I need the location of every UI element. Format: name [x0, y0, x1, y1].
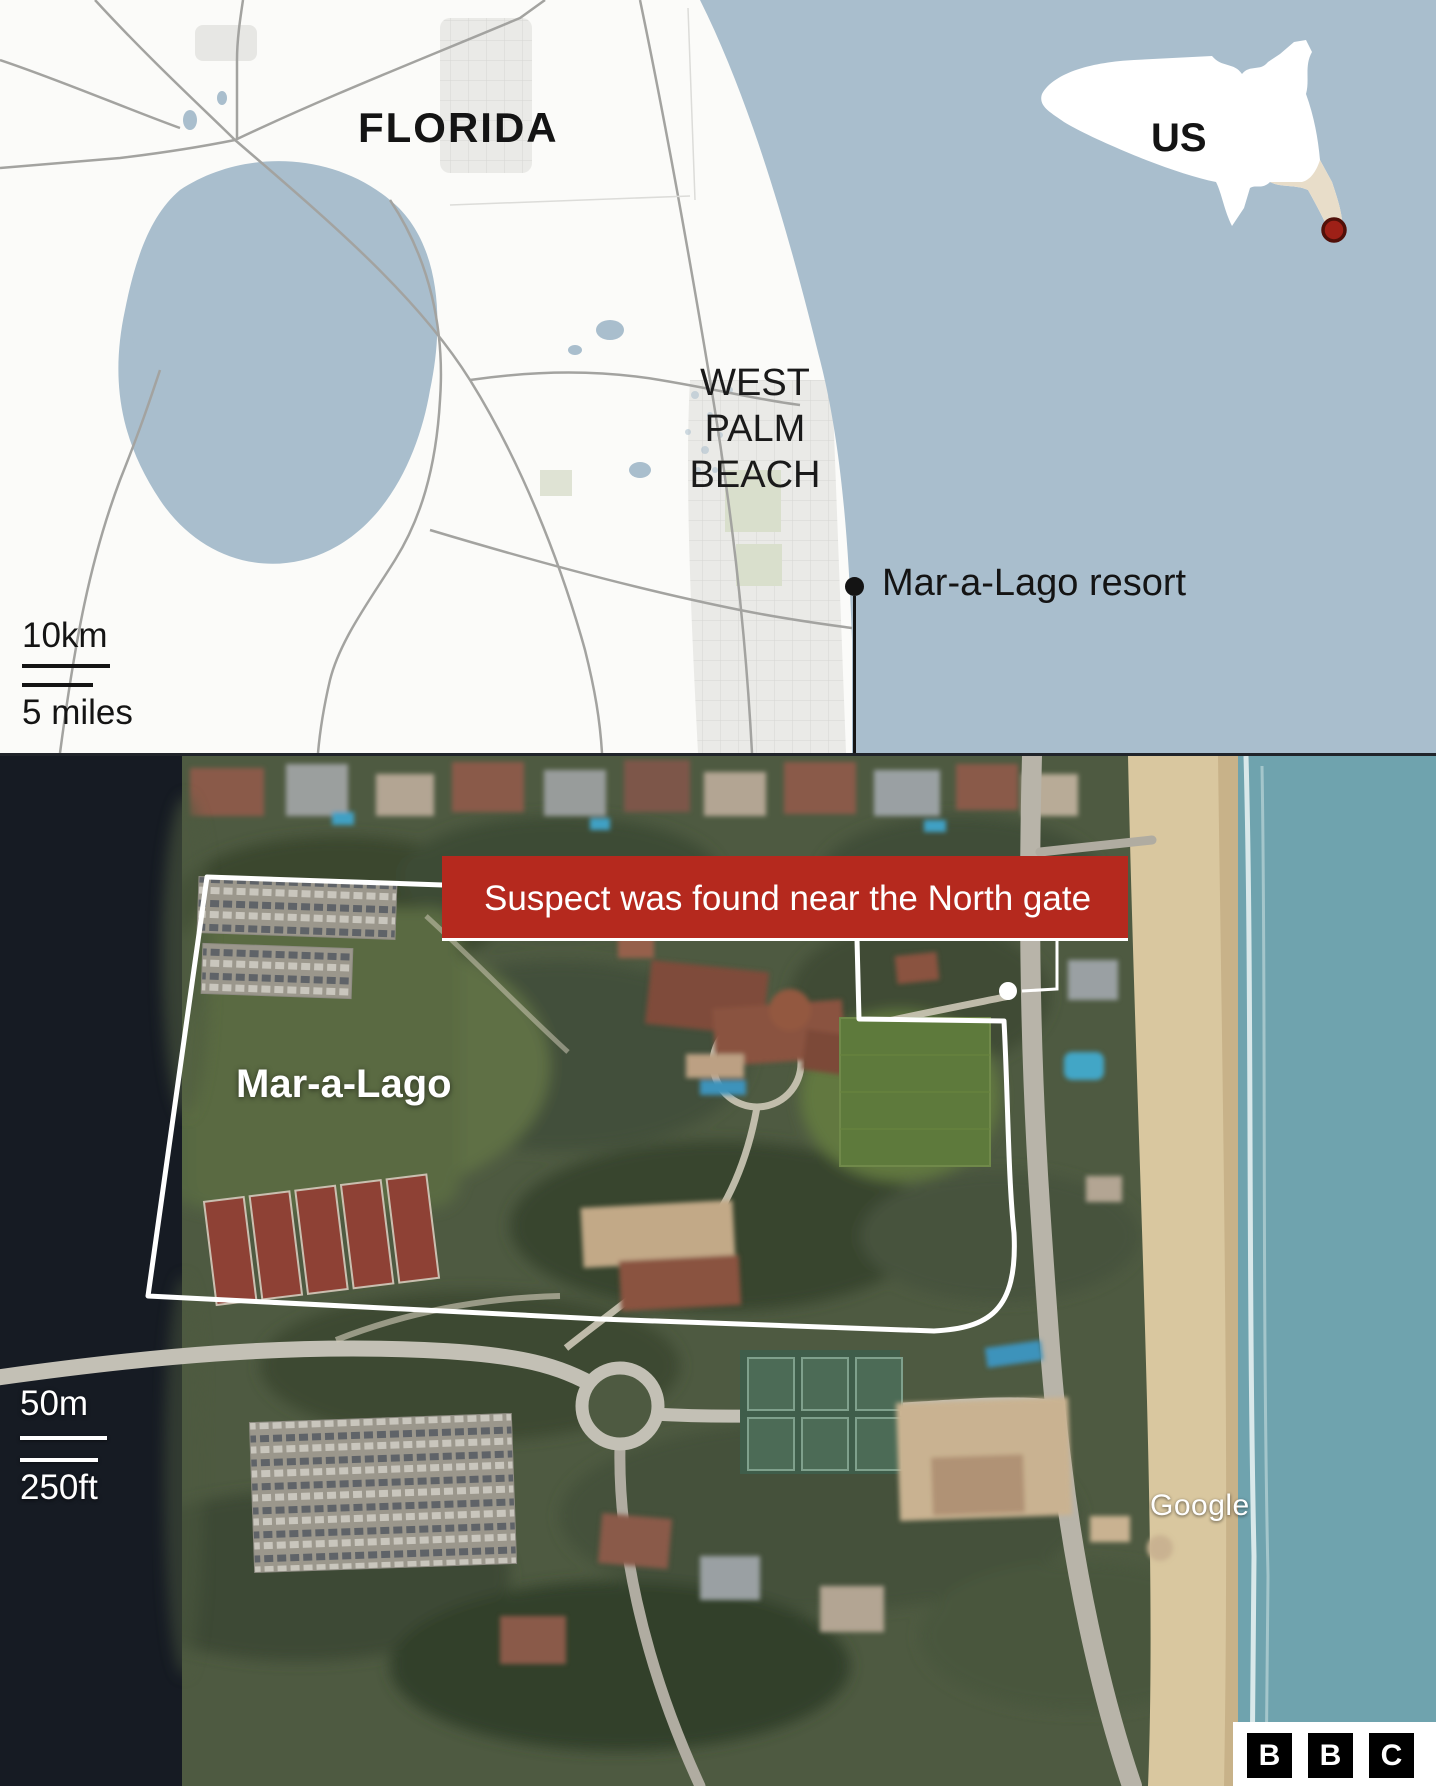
intracoastal-water	[0, 756, 210, 1786]
city-label-line: BEACH	[648, 452, 862, 498]
resort-marker-leader-line	[853, 596, 856, 753]
city-label: WEST PALM BEACH	[648, 360, 862, 498]
scale-metric-bar	[20, 1436, 107, 1440]
us-label: US	[1151, 116, 1207, 161]
bbc-logo-letter: B	[1247, 1733, 1292, 1778]
florida-label: FLORIDA	[358, 104, 559, 152]
scale-metric-label: 10km	[22, 616, 133, 656]
bbc-letter: C	[1381, 1739, 1403, 1773]
satellite-map: Suspect was found near the North gate Ma…	[0, 753, 1436, 1786]
overview-map: US FLORIDA WEST PALM BEACH 10km 5 miles …	[0, 0, 1436, 753]
satellite-scale-bar: 50m 250ft	[20, 1384, 107, 1508]
south-tennis-courts	[740, 1350, 902, 1474]
croquet-lawn	[840, 1018, 990, 1166]
bbc-logo-letter: B	[1308, 1733, 1353, 1778]
scale-imperial-label: 250ft	[20, 1468, 107, 1508]
overview-scale-bar: 10km 5 miles	[22, 616, 133, 733]
city-label-line: WEST	[648, 360, 862, 406]
property-label: Mar-a-Lago	[236, 1062, 452, 1107]
google-attribution: Google	[1150, 1489, 1250, 1523]
resort-location-dot-icon	[845, 577, 864, 596]
bbc-letter: B	[1320, 1739, 1342, 1773]
north-gate-dot-icon	[999, 982, 1017, 1000]
scale-metric-bar	[22, 664, 110, 668]
bbc-logo-background: B B C	[1233, 1722, 1436, 1786]
bbc-letter: B	[1259, 1739, 1281, 1773]
atlantic-shore	[1238, 756, 1436, 1786]
bbc-logo-letter: C	[1369, 1733, 1414, 1778]
inset-location-dot-icon	[1323, 219, 1345, 241]
bbc-logo: B B C	[1247, 1733, 1414, 1778]
scale-metric-label: 50m	[20, 1384, 107, 1424]
suspect-banner: Suspect was found near the North gate	[442, 856, 1128, 941]
suspect-banner-text: Suspect was found near the North gate	[484, 879, 1091, 918]
scale-imperial-bar	[22, 683, 93, 687]
resort-marker-label: Mar-a-Lago resort	[882, 562, 1186, 605]
city-label-line: PALM	[648, 406, 862, 452]
scale-imperial-label: 5 miles	[22, 693, 133, 733]
scale-imperial-bar	[20, 1458, 98, 1462]
bbc-map-graphic: US FLORIDA WEST PALM BEACH 10km 5 miles …	[0, 0, 1436, 1786]
